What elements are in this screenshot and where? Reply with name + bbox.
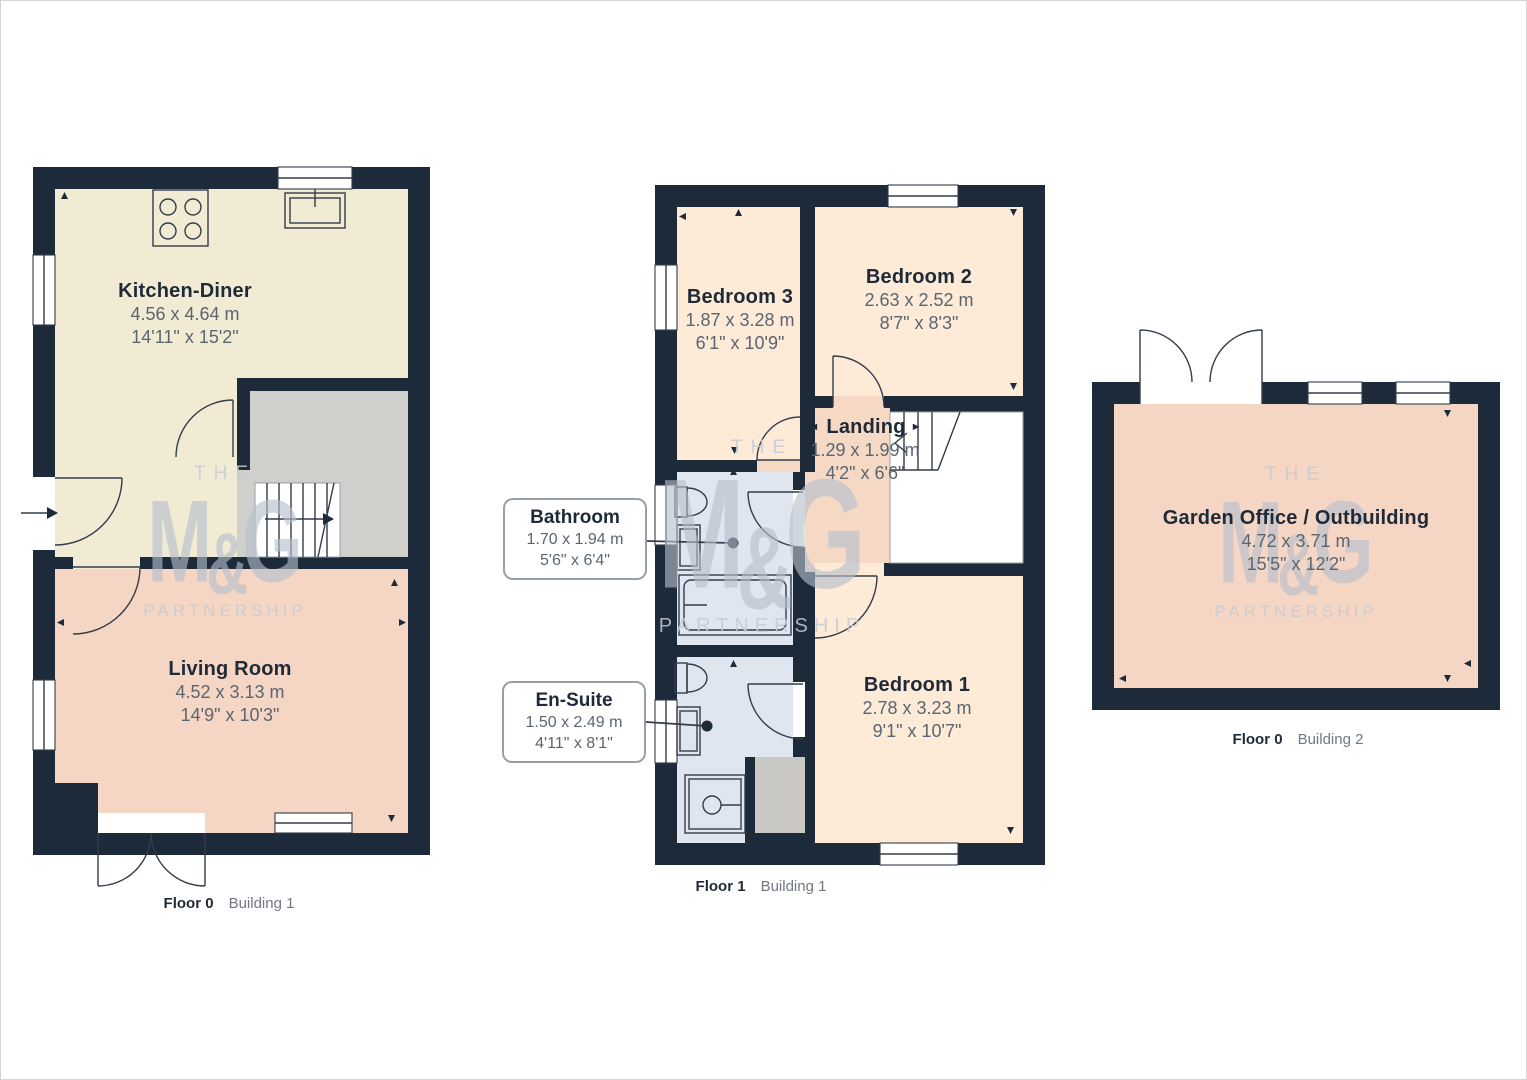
doors — [1140, 330, 1262, 404]
room-label-living-room: Living Room 4.52 x 3.13 m 14'9" x 10'3" — [168, 657, 291, 726]
floorplan-drawing-floor0-building1 — [33, 167, 430, 855]
ensuite-leader-dot — [702, 721, 713, 732]
room-label-bedroom-1: Bedroom 1 2.78 x 3.23 m 9'1" x 10'7" — [862, 673, 971, 742]
caption-floor1-building1: Floor 1Building 1 — [696, 878, 827, 895]
cupboard-block — [755, 757, 805, 833]
callout-bathroom: Bathroom 1.70 x 1.94 m 5'6" x 6'4" — [503, 498, 647, 580]
caption-floor0-building2: Floor 0Building 2 — [1233, 731, 1364, 748]
room-label-bedroom-2: Bedroom 2 2.63 x 2.52 m 8'7" x 8'3" — [864, 265, 973, 334]
floorplan-floor0-building2: THE M&G PARTNERSHIP Garden Office / Outb… — [1092, 382, 1500, 710]
room-label-landing: Landing 1.29 x 1.99 m 4'2" x 6'6" — [808, 415, 921, 484]
stairs-icon — [255, 483, 340, 557]
room-bathroom — [677, 472, 793, 645]
walls-and-floors — [33, 167, 430, 855]
caption-floor0-building1: Floor 0Building 1 — [164, 895, 295, 912]
french-door-arcs — [1140, 330, 1262, 382]
floorplan-page: { "colors": { "wall": "#1c2a39", "line":… — [0, 0, 1527, 1080]
floorplan-floor1-building1: THE M&G PARTNERSHIP Bedroom 3 1.87 x 3.2… — [655, 185, 1045, 865]
bathroom-leader-dot — [728, 538, 739, 549]
room-label-bedroom-3: Bedroom 3 1.87 x 3.28 m 6'1" x 10'9" — [685, 285, 794, 354]
room-label-kitchen-diner: Kitchen-Diner 4.56 x 4.64 m 14'11" x 15'… — [118, 279, 252, 348]
callout-en-suite: En-Suite 1.50 x 2.49 m 4'11" x 8'1" — [502, 681, 646, 763]
room-label-garden-office: Garden Office / Outbuilding 4.72 x 3.71 … — [1163, 506, 1430, 575]
floorplan-floor0-building1: THE M&G PARTNERSHIP Kitchen-Diner 4.56 x… — [33, 167, 430, 855]
